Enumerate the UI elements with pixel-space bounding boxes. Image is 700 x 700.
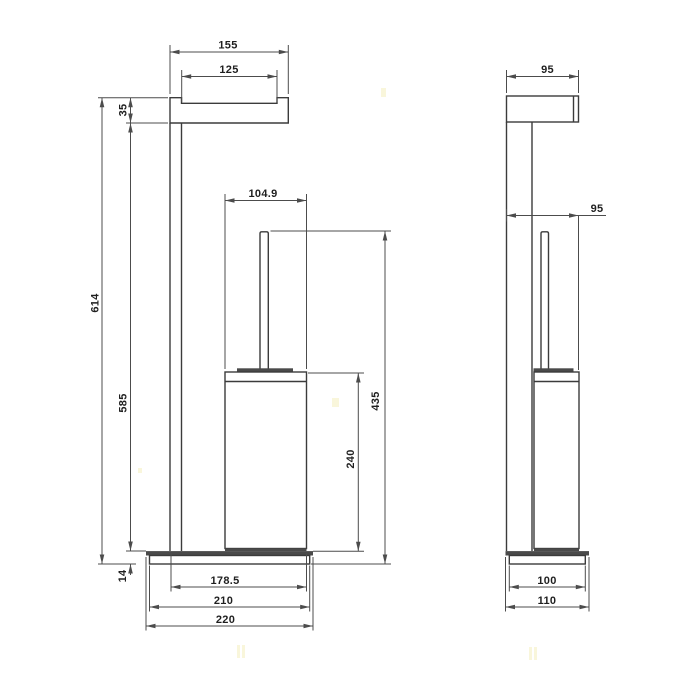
arrowhead bbox=[128, 542, 133, 552]
dim-overall-height: 614 bbox=[90, 98, 137, 564]
dim-base-plate-depth-label: 110 bbox=[538, 595, 557, 607]
arrowhead bbox=[356, 373, 361, 383]
front-view: 155 125 35 614 bbox=[90, 40, 392, 631]
brush-container-side bbox=[534, 372, 579, 551]
arrowhead bbox=[383, 231, 388, 241]
brush-handle-side bbox=[534, 232, 574, 372]
dim-base-body-depth: 100 bbox=[509, 566, 585, 592]
arrowhead bbox=[304, 624, 314, 629]
side-view: 95 95 100 110 bbox=[506, 64, 607, 612]
arrowhead bbox=[100, 98, 105, 108]
arrowhead bbox=[171, 585, 181, 590]
container-bottom-band bbox=[225, 549, 307, 552]
arrowhead bbox=[100, 555, 105, 565]
dim-base-body-depth-label: 100 bbox=[537, 575, 556, 587]
base-body bbox=[150, 556, 310, 565]
dim-post-height: 585 bbox=[118, 123, 147, 551]
dim-base-body-width: 210 bbox=[150, 566, 310, 612]
brush-container bbox=[225, 372, 307, 551]
dim-base-span-width: 178.5 bbox=[171, 553, 307, 592]
dim-body-depth-label: 95 bbox=[591, 203, 604, 215]
arrowhead bbox=[150, 605, 160, 610]
dim-arm-depth-label: 95 bbox=[541, 64, 554, 76]
paper-holder-arm bbox=[170, 98, 288, 123]
dim-arm-recess-width-label: 125 bbox=[219, 64, 238, 76]
dim-container-height-label: 240 bbox=[345, 449, 357, 468]
arm-outline bbox=[170, 98, 288, 123]
arrowhead bbox=[268, 74, 278, 79]
arrowhead bbox=[569, 213, 579, 218]
drawing-canvas: 155 125 35 614 bbox=[0, 0, 700, 700]
arrowhead bbox=[506, 605, 516, 610]
base-side bbox=[506, 551, 590, 564]
brush-handle bbox=[237, 232, 293, 372]
container-body-side bbox=[534, 372, 579, 549]
watermark-mark bbox=[242, 645, 245, 658]
arrowhead bbox=[146, 624, 156, 629]
arrowhead bbox=[507, 213, 517, 218]
arrowhead bbox=[509, 585, 519, 590]
dim-container-width-label: 104.9 bbox=[248, 188, 277, 200]
watermark-mark bbox=[138, 468, 142, 473]
watermark-mark bbox=[381, 88, 386, 97]
arrowhead bbox=[182, 74, 192, 79]
dim-base-body-width-label: 210 bbox=[214, 595, 233, 607]
support-post bbox=[170, 123, 182, 551]
arrowhead bbox=[576, 585, 586, 590]
watermark-artifacts bbox=[138, 88, 537, 660]
dim-arm-width-label: 155 bbox=[218, 40, 237, 52]
arrowhead bbox=[225, 198, 235, 203]
arrowhead bbox=[128, 123, 133, 133]
support-post-side bbox=[507, 122, 533, 551]
dim-brush-height-label: 435 bbox=[370, 391, 382, 410]
container-body bbox=[225, 372, 307, 549]
arrowhead bbox=[170, 50, 180, 55]
arrowhead bbox=[356, 542, 361, 552]
arrowhead bbox=[569, 74, 579, 79]
dim-body-depth: 95 bbox=[507, 203, 607, 370]
dim-base-span-width-label: 178.5 bbox=[210, 575, 239, 587]
handle-rod-side bbox=[541, 232, 549, 369]
arrowhead bbox=[383, 555, 388, 565]
dim-base-height: 14 bbox=[117, 564, 133, 582]
arrowhead bbox=[297, 198, 307, 203]
watermark-mark bbox=[237, 645, 240, 658]
arrowhead bbox=[507, 74, 517, 79]
watermark-mark bbox=[534, 647, 537, 660]
dim-post-height-label: 585 bbox=[118, 393, 130, 412]
dim-overall-height-label: 614 bbox=[90, 293, 102, 313]
dim-arm-height-label: 35 bbox=[118, 104, 130, 117]
watermark-mark bbox=[529, 647, 532, 660]
dim-base-plate-width-label: 220 bbox=[216, 614, 235, 626]
arrowhead bbox=[297, 585, 307, 590]
dim-brush-height: 435 bbox=[271, 231, 392, 564]
paper-holder-arm-side bbox=[507, 96, 579, 122]
arrowhead bbox=[580, 605, 590, 610]
dim-base-height-label: 14 bbox=[117, 569, 129, 582]
container-bottom-band-side bbox=[534, 549, 579, 552]
watermark-mark bbox=[332, 398, 339, 407]
base-body-side bbox=[509, 556, 585, 565]
handle-rod bbox=[260, 232, 268, 369]
dim-arm-height: 35 bbox=[98, 98, 168, 123]
arrowhead bbox=[279, 50, 289, 55]
dim-container-width: 104.9 bbox=[225, 188, 307, 369]
arrowhead bbox=[300, 605, 310, 610]
dim-arm-recess-width: 125 bbox=[182, 64, 277, 102]
dim-arm-depth: 95 bbox=[507, 64, 579, 93]
arm-side-outline bbox=[507, 96, 579, 122]
